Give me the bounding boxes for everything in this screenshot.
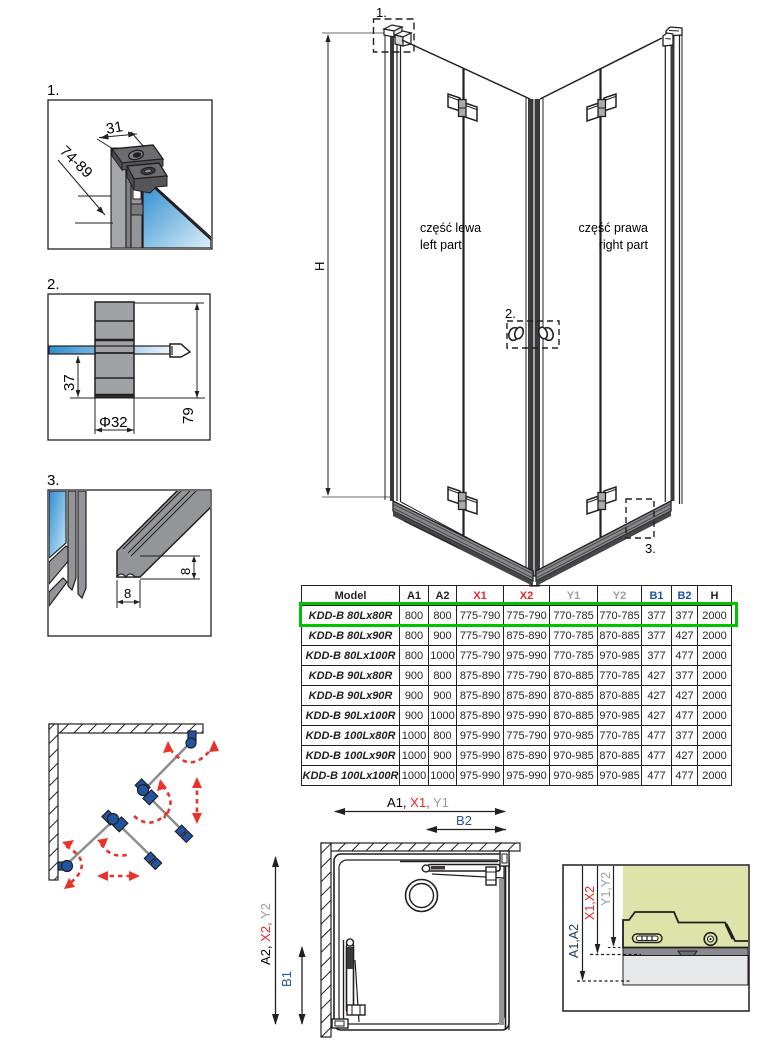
svg-text:Y1,Y2: Y1,Y2 bbox=[599, 872, 613, 906]
svg-text:A1,A2: A1,A2 bbox=[567, 924, 581, 958]
svg-text:X1,X2: X1,X2 bbox=[583, 886, 597, 920]
